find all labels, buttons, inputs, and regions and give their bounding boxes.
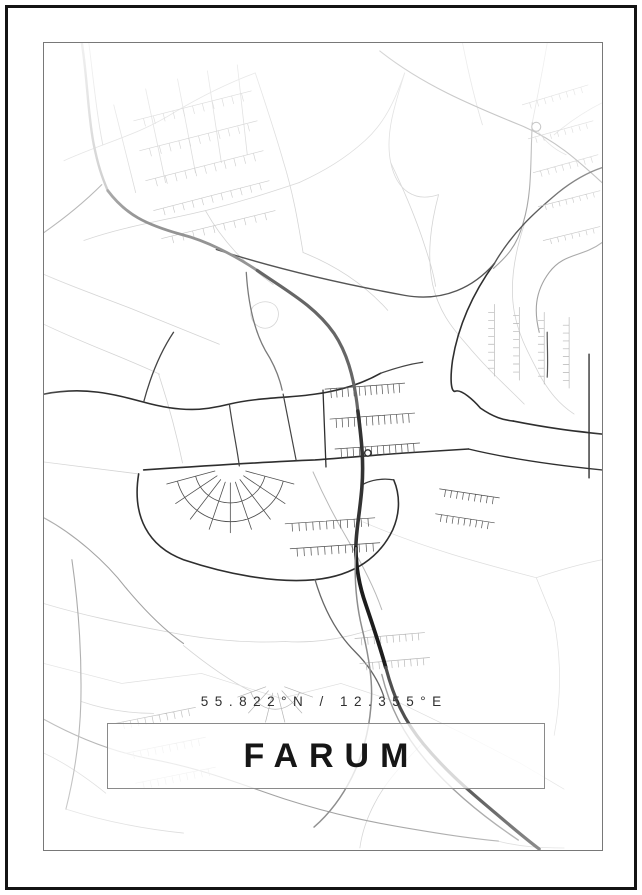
poster: 55.822°N / 12.355°E FARUM <box>0 0 642 895</box>
coordinates-label: 55.822°N / 12.355°E <box>0 694 642 709</box>
city-name-box: FARUM <box>107 723 545 789</box>
city-name: FARUM <box>233 737 420 776</box>
